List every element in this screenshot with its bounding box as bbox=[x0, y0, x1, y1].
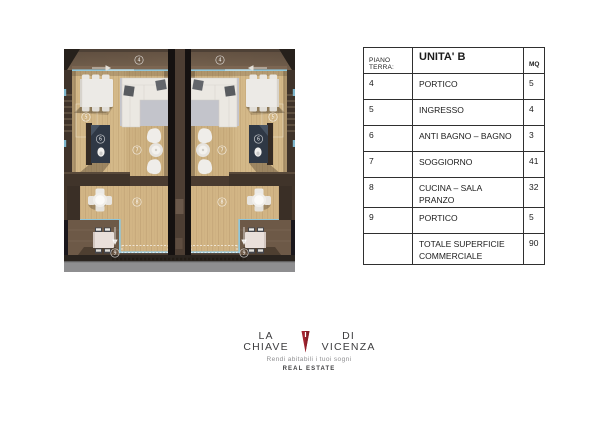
agency-name: LA CHIAVE DI VICENZA bbox=[234, 331, 384, 352]
building-bottom-edge bbox=[64, 255, 295, 262]
table-row: 8 CUCINA – SALA PRANZO 32 bbox=[364, 178, 545, 208]
brochure-page: 4 5 6 7 8 9 4 5 6 7 8 9 PIANO TERRA: UNI… bbox=[0, 0, 600, 424]
room-label-cucina: 8 bbox=[135, 200, 138, 206]
room-number: 4 bbox=[364, 74, 413, 100]
table-row: 5 INGRESSO 4 bbox=[364, 100, 545, 126]
room-label-cucina: 8 bbox=[220, 200, 223, 206]
total-label: TOTALE SUPERFICIE COMMERCIALE bbox=[413, 233, 524, 264]
room-number: 9 bbox=[364, 207, 413, 233]
floor-label: PIANO TERRA: bbox=[364, 48, 413, 74]
room-area: 4 bbox=[524, 100, 545, 126]
room-name: SOGGIORNO bbox=[413, 152, 524, 178]
room-label-bagno: 6 bbox=[257, 137, 260, 143]
room-name: CUCINA – SALA PRANZO bbox=[413, 178, 524, 208]
unit-title: UNITA' B bbox=[413, 48, 524, 74]
room-number: 5 bbox=[364, 100, 413, 126]
table-total-row: TOTALE SUPERFICIE COMMERCIALE 90 bbox=[364, 233, 545, 264]
total-area: 90 bbox=[524, 233, 545, 264]
room-name: INGRESSO bbox=[413, 100, 524, 126]
floor-plan-svg: 4 5 6 7 8 9 4 5 6 7 8 9 bbox=[64, 49, 295, 272]
room-area: 32 bbox=[524, 178, 545, 208]
room-number: 6 bbox=[364, 126, 413, 152]
table-row: 7 SOGGIORNO 41 bbox=[364, 152, 545, 178]
room-label-bagno: 6 bbox=[99, 137, 102, 143]
central-wall bbox=[168, 49, 191, 260]
floor-plan-render: 4 5 6 7 8 9 4 5 6 7 8 9 bbox=[64, 49, 295, 272]
unit-right bbox=[184, 49, 295, 260]
room-label-portico-bottom: 9 bbox=[242, 251, 245, 257]
room-label-ingresso: 5 bbox=[271, 115, 274, 121]
table-row: 9 PORTICO 5 bbox=[364, 207, 545, 233]
agency-name-right: DI VICENZA bbox=[313, 331, 384, 352]
area-header: MQ bbox=[524, 48, 545, 74]
room-label-ingresso: 5 bbox=[84, 115, 87, 121]
room-area: 41 bbox=[524, 152, 545, 178]
room-label-portico-top: 4 bbox=[218, 58, 221, 64]
room-area: 3 bbox=[524, 126, 545, 152]
ground-strip bbox=[64, 262, 295, 272]
room-name: PORTICO bbox=[413, 207, 524, 233]
table-row: 6 ANTI BAGNO – BAGNO 3 bbox=[364, 126, 545, 152]
unit-spec-table: PIANO TERRA: UNITA' B MQ 4 PORTICO 5 5 I… bbox=[363, 47, 545, 265]
room-number: 7 bbox=[364, 152, 413, 178]
room-name: PORTICO bbox=[413, 74, 524, 100]
agency-logo: LA CHIAVE DI VICENZA Rendi abitabili i t… bbox=[234, 331, 384, 372]
room-label-portico-top: 4 bbox=[137, 58, 140, 64]
room-number: 8 bbox=[364, 178, 413, 208]
room-name: ANTI BAGNO – BAGNO bbox=[413, 126, 524, 152]
agency-subtitle: REAL ESTATE bbox=[234, 366, 384, 372]
room-area: 5 bbox=[524, 207, 545, 233]
total-number-empty bbox=[364, 233, 413, 264]
room-label-soggiorno: 7 bbox=[135, 148, 138, 154]
table-row: 4 PORTICO 5 bbox=[364, 74, 545, 100]
room-label-portico-bottom: 9 bbox=[113, 251, 116, 257]
agency-tagline: Rendi abitabili i tuoi sogni bbox=[234, 356, 384, 363]
unit-left bbox=[64, 49, 175, 260]
agency-name-left: LA CHIAVE bbox=[234, 331, 298, 352]
key-icon bbox=[301, 331, 310, 354]
room-label-soggiorno: 7 bbox=[220, 148, 223, 154]
table-header-row: PIANO TERRA: UNITA' B MQ bbox=[364, 48, 545, 74]
room-area: 5 bbox=[524, 74, 545, 100]
